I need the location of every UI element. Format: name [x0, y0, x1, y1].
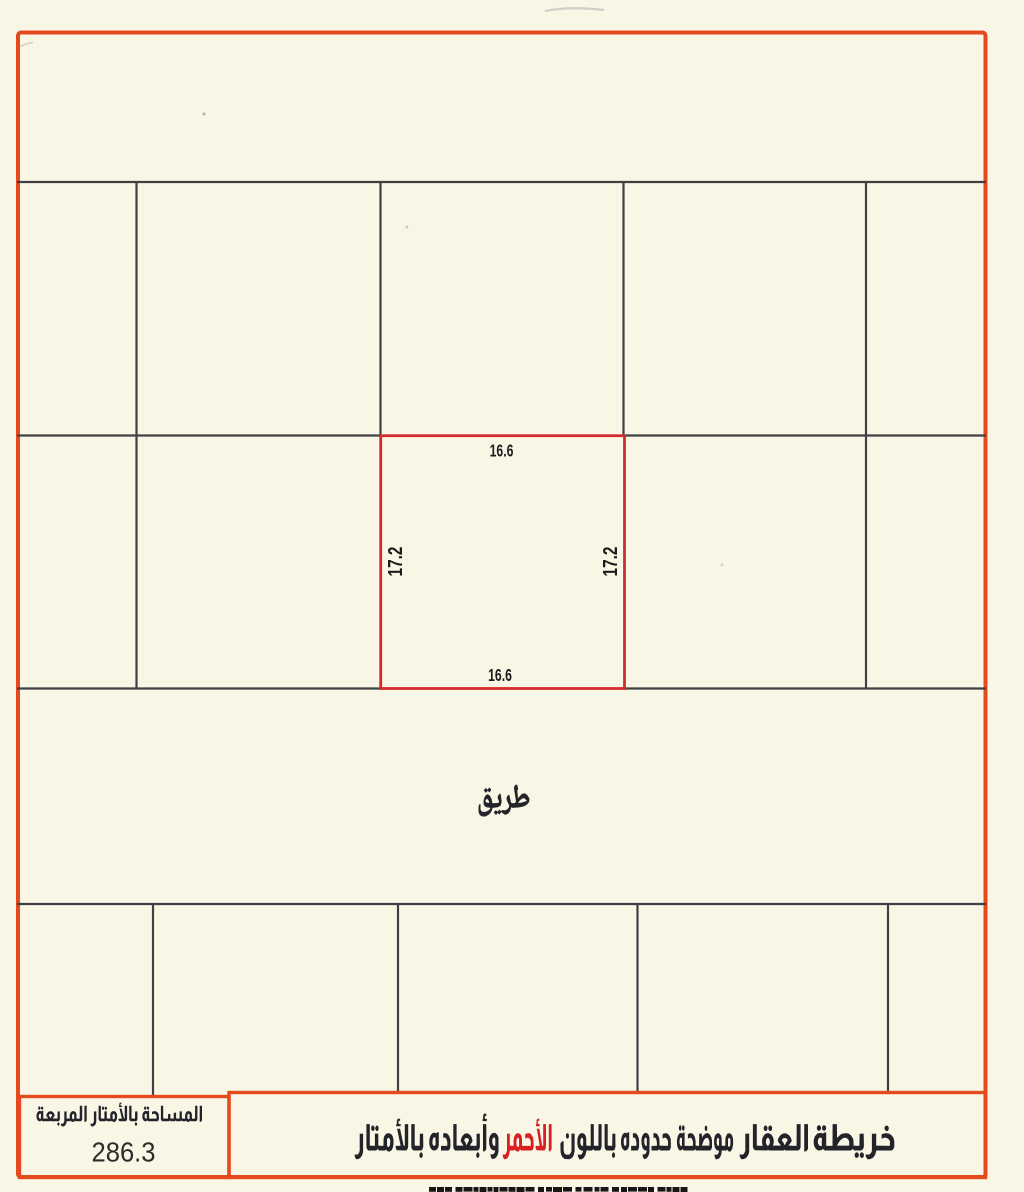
svg-text:17.2: 17.2	[384, 547, 407, 577]
svg-text:16.6: 16.6	[490, 441, 514, 461]
svg-text:16.6: 16.6	[488, 666, 512, 686]
svg-text:17.2: 17.2	[599, 547, 622, 577]
svg-text:286.3: 286.3	[92, 1137, 156, 1168]
